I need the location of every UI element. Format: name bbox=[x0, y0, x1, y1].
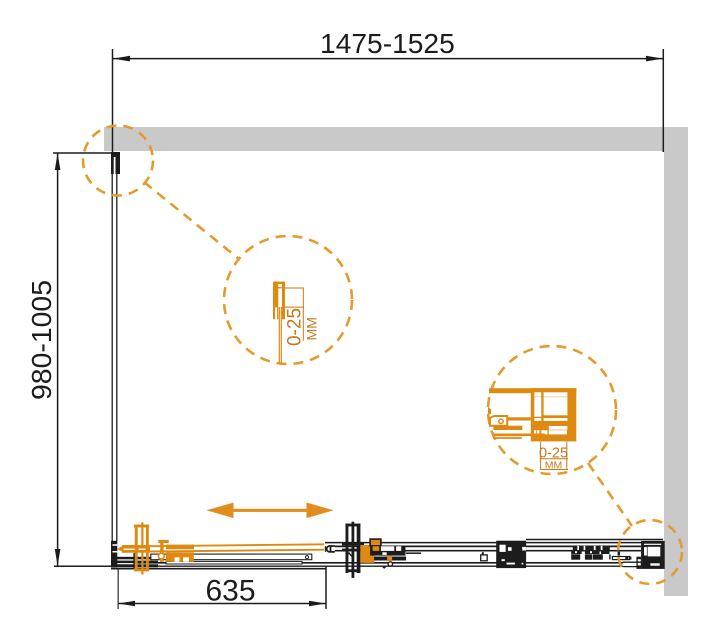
svg-text:635: 635 bbox=[205, 574, 255, 607]
svg-text:0-25: 0-25 bbox=[285, 308, 306, 346]
svg-text:ММ: ММ bbox=[545, 459, 563, 471]
svg-text:1475-1525: 1475-1525 bbox=[320, 28, 455, 59]
svg-text:ММ: ММ bbox=[304, 317, 320, 340]
svg-text:980-1005: 980-1005 bbox=[26, 280, 57, 400]
